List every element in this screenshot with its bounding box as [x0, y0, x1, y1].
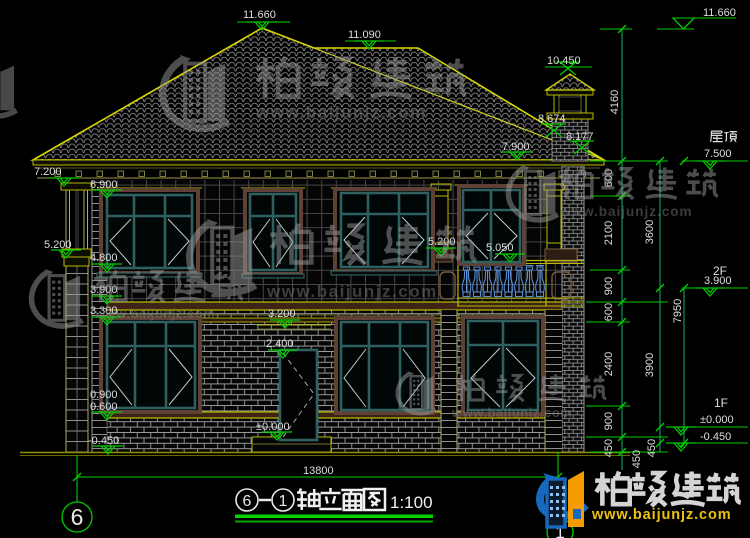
svg-text:900: 900 [603, 277, 615, 295]
svg-text:www.baijunjz.com: www.baijunjz.com [255, 103, 427, 122]
svg-text:2400: 2400 [603, 352, 615, 376]
svg-text:450: 450 [646, 439, 658, 457]
svg-text:2.400: 2.400 [266, 338, 294, 350]
svg-text:www.baijunjz.com: www.baijunjz.com [451, 405, 572, 420]
svg-text:600: 600 [603, 303, 615, 321]
svg-text:www.baijunjz.com: www.baijunjz.com [94, 306, 215, 321]
svg-text:8.674: 8.674 [538, 113, 566, 125]
svg-text:6: 6 [71, 504, 84, 530]
svg-text:3.200: 3.200 [268, 308, 296, 320]
svg-text:3900: 3900 [644, 353, 656, 377]
svg-text:11.660: 11.660 [243, 9, 276, 21]
svg-text:11.660: 11.660 [703, 7, 736, 19]
svg-text:450: 450 [603, 439, 615, 457]
svg-text:10.450: 10.450 [547, 55, 581, 67]
svg-text:1:100: 1:100 [390, 493, 433, 512]
svg-text:www.baijunjz.com: www.baijunjz.com [591, 507, 732, 523]
svg-text:7.200: 7.200 [34, 166, 62, 178]
svg-text:900: 900 [603, 412, 615, 430]
svg-text:11.090: 11.090 [348, 29, 381, 41]
svg-text:7.900: 7.900 [502, 141, 530, 153]
svg-text:2100: 2100 [603, 221, 615, 245]
svg-text:±0.000: ±0.000 [700, 414, 734, 426]
svg-text:3600: 3600 [644, 220, 656, 244]
svg-text:450: 450 [631, 450, 643, 468]
svg-text:6.900: 6.900 [90, 179, 118, 191]
svg-text:5.200: 5.200 [44, 239, 72, 251]
svg-text:13800: 13800 [303, 465, 334, 477]
svg-text:-0.450: -0.450 [88, 435, 119, 447]
svg-text:1F: 1F [714, 396, 728, 410]
svg-text:4160: 4160 [609, 90, 621, 114]
svg-text:2F: 2F [713, 264, 727, 278]
svg-text:www.baijunjz.com: www.baijunjz.com [266, 282, 438, 301]
svg-text:±0.000: ±0.000 [256, 421, 290, 433]
svg-text:5.050: 5.050 [486, 242, 514, 254]
svg-text:0.600: 0.600 [90, 401, 118, 413]
svg-text:6: 6 [243, 493, 252, 510]
svg-text:7950: 7950 [672, 299, 684, 323]
svg-text:www.baijunjz.com: www.baijunjz.com [559, 204, 693, 219]
svg-text:1: 1 [279, 493, 288, 510]
svg-text:-0.450: -0.450 [700, 431, 731, 443]
svg-text:4.800: 4.800 [90, 252, 118, 264]
svg-text:7.500: 7.500 [704, 148, 732, 160]
svg-text:0.900: 0.900 [90, 389, 118, 401]
svg-text:8.177: 8.177 [566, 131, 594, 143]
